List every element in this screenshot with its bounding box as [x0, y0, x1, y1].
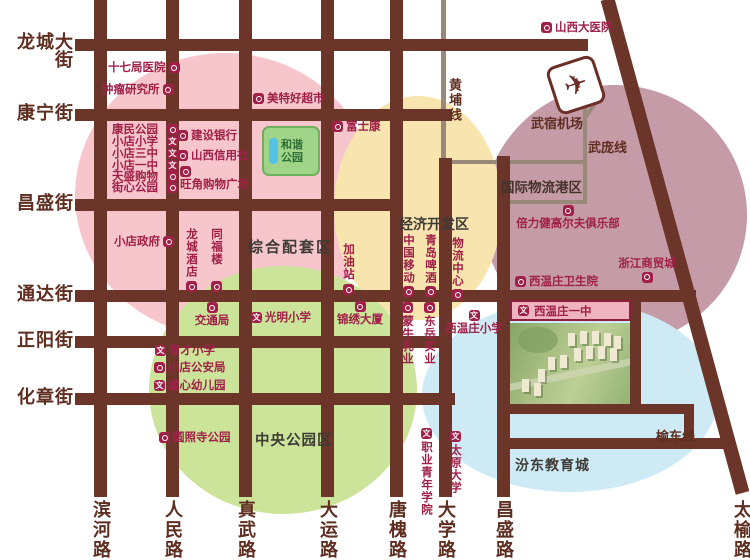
- building-icon: [592, 331, 599, 344]
- school-icon: [421, 428, 432, 439]
- building-icon: [355, 301, 366, 312]
- street-label-tongda: 通达街: [0, 286, 74, 304]
- road-block-top: [441, 160, 587, 164]
- company-icon: [403, 286, 414, 297]
- street-label-longcheng: 龙城大街: [0, 34, 74, 70]
- school-icon: [251, 312, 262, 323]
- poi-meitehao-supermarket: 美特好超市: [253, 93, 325, 105]
- school-icon: [450, 431, 461, 442]
- residential-render-image: [510, 323, 630, 404]
- poi-police-bureau: 小店公安局: [154, 362, 226, 374]
- building-icon: [586, 346, 593, 359]
- clinic-icon: [515, 276, 526, 287]
- road-label-changsheng: 昌盛路: [492, 500, 514, 560]
- road-label-zhenwu: 真武路: [234, 500, 256, 560]
- building-icon: [610, 348, 617, 361]
- street-label-changsheng: 昌盛街: [0, 195, 74, 213]
- building-icon: [574, 348, 581, 361]
- line-label-yudong: 榆东线: [656, 426, 695, 445]
- road-renmin: [166, 0, 179, 497]
- line-label-wupang: 武庞线: [588, 137, 627, 156]
- line-label-huangpu: 黄埔线: [444, 78, 463, 123]
- building-icon: [538, 369, 545, 382]
- poi-tongfulou-restaurant: 同福楼: [210, 228, 223, 292]
- poi-tongxin-kindergarten: 童心幼儿园: [154, 380, 226, 392]
- poi-longcheng-hotel: 龙城酒店: [185, 228, 198, 292]
- poi-jiexin-park: 街心公园: [112, 182, 178, 194]
- government-icon: [163, 236, 174, 247]
- police-icon: [154, 362, 165, 373]
- poi-foxconn: 富士康: [332, 121, 381, 133]
- school-icon: [155, 345, 166, 356]
- poi-dongyue-industry: 东岳实业: [423, 302, 436, 365]
- supermarket-icon: [253, 93, 264, 104]
- building-icon: [534, 383, 541, 396]
- company-icon: [425, 286, 436, 297]
- zone-title-composite: 综合配套区: [248, 236, 333, 257]
- poi-shanxi-credit-union: 山西信用社: [177, 150, 249, 162]
- poi-yucai-primary: 育才小学: [155, 345, 215, 357]
- gas-station-icon: [343, 284, 354, 295]
- poi-xiaodian-government: 小店政府: [114, 236, 174, 248]
- logistics-icon: [452, 289, 463, 300]
- poi-logistics-center: 物流中心: [451, 237, 464, 293]
- map-canvas: { "streets_left": [ {"label": "龙城大街"}, {…: [0, 0, 750, 560]
- building-icon: [560, 355, 567, 368]
- road-label-dayun: 大运路: [316, 500, 338, 560]
- road-render-right: [630, 302, 641, 408]
- poi-china-mobile: 中国移动: [402, 234, 415, 290]
- school-icon: [518, 305, 529, 316]
- bureau-icon: [207, 302, 218, 313]
- building-icon: [598, 346, 605, 359]
- company-icon: [424, 302, 435, 313]
- market-icon: [642, 272, 653, 283]
- poi-17ju-hospital: 十七局医院: [108, 62, 180, 74]
- road-label-daxue: 大学路: [434, 500, 456, 560]
- hospital-icon: [541, 22, 552, 33]
- hospital-icon: [169, 62, 180, 73]
- building-icon: [580, 331, 587, 344]
- poi-taiyuan-university: 太原大学: [449, 431, 462, 494]
- poi-zhejiang-trade-city: 浙江商贸城: [616, 258, 678, 283]
- harmony-park-label: 和谐公园: [281, 138, 305, 164]
- poi-mengniu-dairy: 蒙牛乳业: [401, 302, 414, 365]
- poi-tumor-institute: 肿瘤研究所: [102, 84, 174, 96]
- poi-guangming-primary: 光明小学: [251, 312, 311, 324]
- poi-xiwenzhuang-primary: 西温庄小学: [445, 310, 503, 335]
- bank-icon: [177, 150, 188, 161]
- hospital-icon: [163, 84, 174, 95]
- poi-traffic-bureau: 交通局: [192, 302, 232, 327]
- bank-icon: [177, 130, 188, 141]
- airport-label: 武宿机场: [531, 113, 583, 132]
- zone-title-central-park: 中央公园区: [255, 429, 333, 450]
- shopping-icon: [180, 166, 191, 177]
- golf-icon: [563, 205, 574, 216]
- poi-gas-station: 加油站: [342, 243, 355, 295]
- street-label-zhengyang: 正阳街: [0, 332, 74, 350]
- company-icon: [332, 121, 343, 132]
- road-block-bottom: [499, 200, 587, 204]
- poi-xiwenzhuang-clinic: 西温庄卫生院: [515, 276, 598, 288]
- road-binhe: [94, 0, 107, 497]
- school-icon: [167, 160, 178, 171]
- road-label-tanghuai: 唐槐路: [385, 500, 407, 560]
- company-icon: [402, 302, 413, 313]
- school-icon: [469, 310, 480, 321]
- building-icon: [568, 333, 575, 346]
- street-label-huazhang: 化章街: [0, 389, 74, 407]
- building-icon: [522, 379, 529, 392]
- zone-title-education: 汾东教育城: [515, 455, 590, 475]
- shopping-icon: [167, 171, 178, 182]
- poi-construction-bank: 建设银行: [177, 130, 237, 142]
- poi-yuanzhao-temple-park: 圆照寺公园: [159, 432, 231, 444]
- zone-title-logistics: 国际物流港区: [501, 176, 582, 196]
- poi-wangjiao-shopping-plaza: 旺角购物广场: [180, 166, 249, 191]
- poi-shanxi-hospital: 山西大医院: [541, 22, 613, 34]
- road-label-renmin: 人民路: [161, 500, 183, 560]
- road-label-taiyu: 太榆路: [730, 500, 750, 560]
- airplane-icon: ✈: [561, 68, 592, 102]
- building-icon: [548, 357, 555, 370]
- restaurant-icon: [211, 281, 222, 292]
- building-icon: [604, 333, 611, 346]
- poi-jinxiu-tower: 锦绣大厦: [334, 301, 386, 326]
- park-icon: [167, 182, 178, 193]
- xiwenzhuang-no1-middle-school-banner: 西温庄一中: [510, 300, 631, 321]
- school-icon: [154, 380, 165, 391]
- road-label-binhe: 滨河路: [89, 500, 111, 560]
- temple-park-icon: [159, 432, 170, 443]
- road-block-right: [583, 108, 587, 204]
- hotel-icon: [186, 281, 197, 292]
- road-education-block-top: [497, 404, 694, 414]
- pond-icon: [269, 138, 278, 164]
- poi-vocational-youth-college: 职业青年学院: [420, 428, 433, 516]
- poi-tsingtao-beer: 青岛啤酒: [424, 234, 437, 290]
- banner-label: 西温庄一中: [534, 303, 592, 319]
- street-label-kangning: 康宁街: [0, 105, 74, 123]
- poi-golf-club: 倍力健高尔夫俱乐部: [512, 205, 624, 230]
- harmony-park-block: 和谐公园: [262, 126, 320, 176]
- zone-title-economic: 经济开发区: [399, 214, 469, 234]
